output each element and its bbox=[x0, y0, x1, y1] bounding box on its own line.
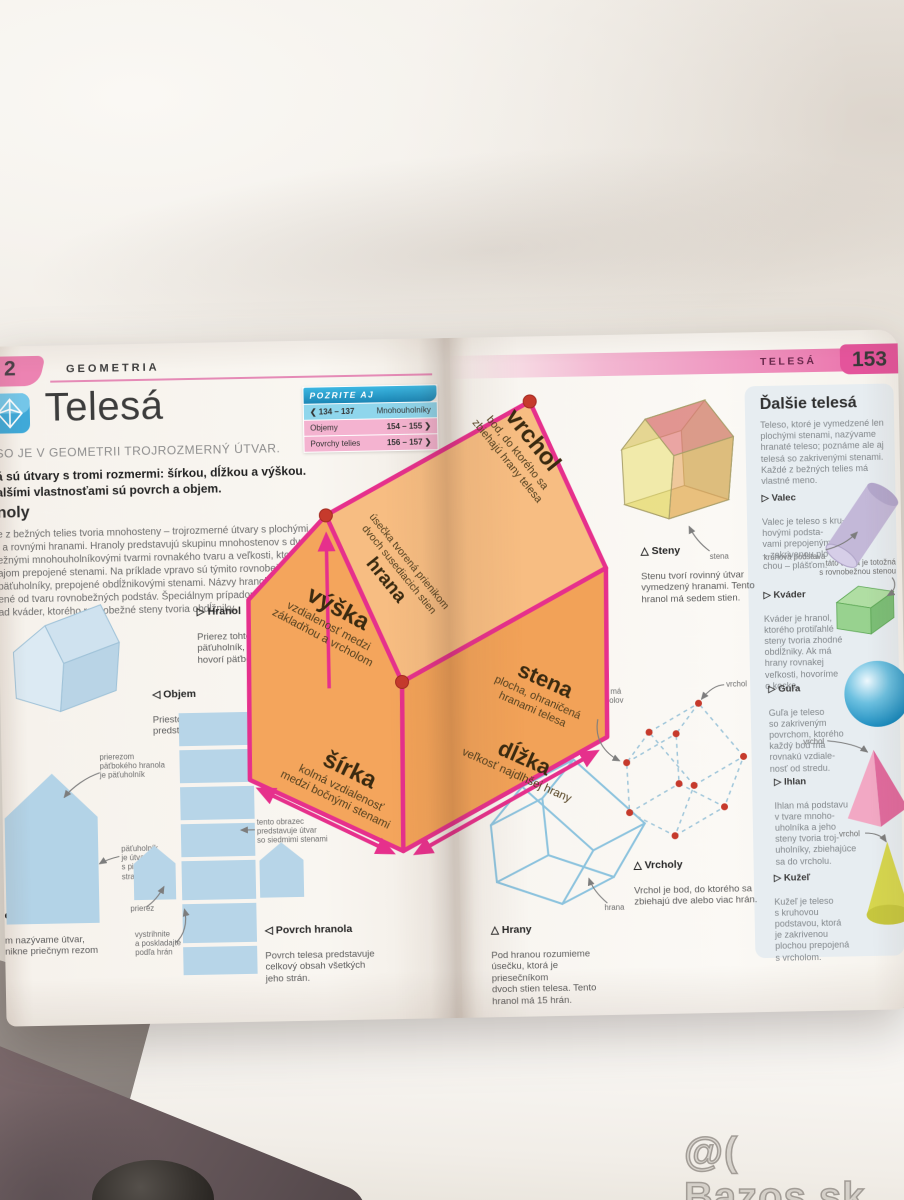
see-also-box: POZRITE AJ ❮ 134 – 137 Mnohouholníky Obj… bbox=[302, 384, 438, 453]
gula-title: ▷ Guľa bbox=[768, 683, 853, 696]
section-heading-hranoly: noly bbox=[0, 504, 30, 523]
callout-prierez: prierez bbox=[130, 904, 154, 914]
page-number-right: 153 bbox=[852, 348, 888, 373]
note-steny-title: △ Steny bbox=[640, 543, 765, 557]
see-also-label: Mnohouholníky bbox=[377, 405, 431, 415]
chapter-label: GEOMETRIA bbox=[66, 362, 160, 376]
callout-prierezom: prierezom päťbokého hranola je päťuholní… bbox=[99, 752, 165, 781]
sidebar-item-gula: ▷ Guľa Guľa je teleso so zakriveným povr… bbox=[768, 671, 855, 774]
note-vrcholy-title: △ Vrcholy bbox=[634, 858, 764, 872]
valec-title: ▷ Valec bbox=[762, 491, 852, 504]
ihlan-title: ▷ Ihlan bbox=[774, 775, 862, 788]
note-povrch-title: ◁ Povrch hranola bbox=[265, 923, 385, 937]
kuzel-text: Kužeľ je teleso s kruhovou podstavou, kt… bbox=[774, 895, 849, 962]
note-prierez-text: m nazývame útvar, nikne priečnym rezom bbox=[5, 934, 98, 958]
page-number-left: 2 bbox=[4, 357, 16, 381]
see-also-label: Povrchy telies bbox=[310, 439, 360, 449]
see-also-pages: 156 – 157 ❯ bbox=[387, 437, 432, 447]
sidebar-title: Ďalšie telesá bbox=[760, 394, 857, 414]
page-title: Telesá bbox=[44, 383, 163, 430]
kvader-title: ▷ Kváder bbox=[763, 588, 853, 601]
sidebar-item-kuzel: ▷ Kužeľ Kužeľ je teleso s kruhovou podst… bbox=[774, 860, 864, 963]
see-also-row: Povrchy telies 156 – 157 ❯ bbox=[304, 433, 437, 452]
callout-hrana: hrana bbox=[604, 903, 624, 913]
sidebar-item-ihlan: ▷ Ihlan Ihlan má podstavu v tvare mnoho-… bbox=[774, 764, 864, 867]
sidebar-item-valec: ▷ Valec Valec je teleso s kru- hovými po… bbox=[761, 480, 853, 572]
callout-vystrihnite: vystrihnite a poskladajte podľa hrán bbox=[135, 929, 181, 957]
book-spread: 2 GEOMETRIA Telesá SO JE V GEOMETRII TRO… bbox=[0, 329, 904, 1026]
callout-vrchol-dashed: vrchol bbox=[726, 679, 747, 689]
note-vrcholy-text: Vrchol je bod, do ktorého sa zbiehajú dv… bbox=[634, 883, 757, 908]
note-povrch: ◁ Povrch hranola Povrch telesa predstavu… bbox=[264, 911, 385, 984]
note-prierez-title: ez bbox=[4, 908, 114, 922]
note-povrch-text: Povrch telesa predstavuje celkový obsah … bbox=[265, 948, 375, 984]
valec-text: Valec je teleso s kru- hovými podsta- va… bbox=[762, 515, 845, 571]
note-objem-title: ◁ Objem bbox=[152, 686, 302, 700]
gula-text: Guľa je teleso so zakriveným povrchom, k… bbox=[769, 706, 844, 773]
kuzel-title: ▷ Kužeľ bbox=[774, 871, 862, 884]
see-also-pages: 154 – 155 ❯ bbox=[387, 421, 432, 431]
see-also-label: Objemy bbox=[310, 423, 338, 433]
callout-obrazec: tento obrazec predstavuje útvar so siedm… bbox=[257, 816, 328, 845]
note-prierez: ez m nazývame útvar, nikne priečnym rezo… bbox=[4, 897, 115, 959]
note-vrcholy: △ Vrcholy Vrchol je bod, do ktorého sa z… bbox=[633, 846, 764, 908]
watermark: @( Bazos.sk bbox=[684, 1130, 904, 1200]
note-hranol-text: Prierez tohto hranola tvorí päťuholník, … bbox=[197, 629, 307, 665]
sidebar-intro: Teleso, ktoré je vymedzené len plochými … bbox=[760, 418, 889, 488]
note-objem-text: Priestor, ktorý teleso zaberá, predstavu… bbox=[153, 712, 274, 737]
photo-scene: 2 GEOMETRIA Telesá SO JE V GEOMETRII TRO… bbox=[0, 0, 904, 1200]
note-steny: △ Steny Stenu tvorí rovinný útvar vymedz… bbox=[640, 532, 766, 605]
see-also-range: ❮ 134 – 137 bbox=[310, 407, 355, 417]
note-hrany-title: △ Hrany bbox=[491, 922, 611, 936]
ihlan-text: Ihlan má podstavu v tvare mnoho- uholník… bbox=[774, 799, 856, 866]
note-hrany-text: Pod hranou rozumieme úsečku, ktorá je pr… bbox=[491, 948, 596, 1007]
note-hrany: △ Hrany Pod hranou rozumieme úsečku, kto… bbox=[491, 911, 613, 1007]
callout-patuholnik: päťuholník je útvar s piatimi stranami bbox=[121, 844, 158, 882]
callout-stena: stena bbox=[710, 552, 729, 562]
note-steny-text: Stenu tvorí rovinný útvar vymedzený hran… bbox=[641, 569, 755, 605]
chapter-label-right: TELESÁ bbox=[760, 355, 817, 368]
intro-text: á sú útvary s tromi rozmermi: šírkou, dĺ… bbox=[0, 463, 307, 501]
solids-icon bbox=[0, 392, 31, 440]
